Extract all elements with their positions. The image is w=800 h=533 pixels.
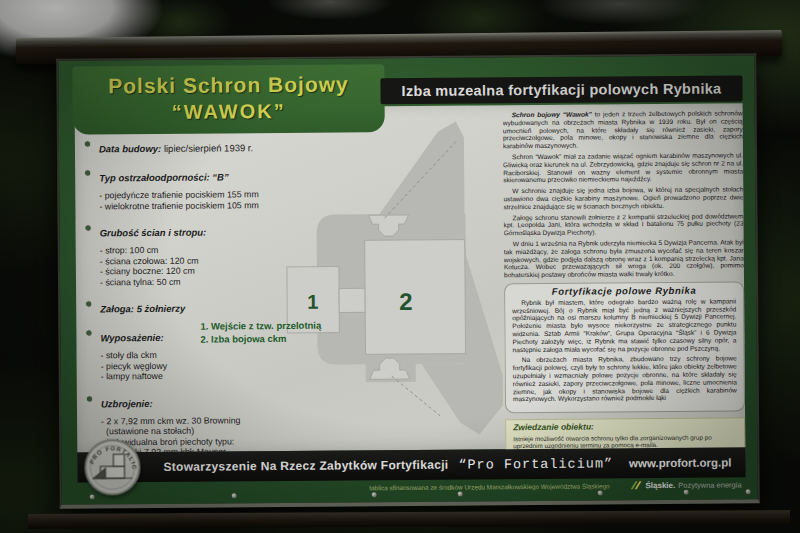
association-name: Stowarzyszenie Na Rzecz Zabytków Fortyfi… <box>163 458 448 474</box>
subtitle-header: Izba muzealna fortyfikacji polowych Rybn… <box>380 75 742 104</box>
room-label-2: 2 <box>399 288 413 315</box>
silesia-tagline: Pozytywna energia <box>678 480 741 489</box>
spec-details: - strop: 100 cm- ściana czołowa: 120 cm-… <box>100 244 291 287</box>
paragraph-1-lead: Schron bojowy “Wawok” <box>512 111 592 119</box>
room-label-1: 1 <box>307 291 318 313</box>
silesia-logo-icon <box>629 480 642 490</box>
photo-of-information-board: Polski Schron Bojowy “WAWOK” Izba muzeal… <box>0 0 800 533</box>
screw-icon <box>746 489 751 494</box>
visiting-info-box: Zwiedzanie obiektu: Istnieje możliwość o… <box>505 417 745 451</box>
silesia-branding: Śląskie. Pozytywna energia <box>629 479 741 490</box>
spec-item-typ: Typ ostrzałoodporności: “B” - pojedyńcze… <box>85 166 290 212</box>
history-text-column: Schron bojowy “Wawok” to jeden z trzech … <box>503 109 746 451</box>
bullet-icon <box>86 301 91 306</box>
legend-line-2: 2. Izba bojowa ckm <box>200 332 321 346</box>
association-website: www.profort.org.pl <box>629 456 746 469</box>
information-board: Polski Schron Bojowy “WAWOK” Izba muzeal… <box>56 53 760 508</box>
legend-line-1: 1. Wejście z tzw. przelotnią <box>200 319 321 333</box>
screw-icon <box>232 493 237 498</box>
bullet-icon <box>85 170 90 175</box>
visiting-title: Zwiedzanie obiektu: <box>513 423 737 433</box>
subtitle-text: Izba muzealna fortyfikacji polowych Rybn… <box>401 81 721 100</box>
paragraph-4: Załogę schronu stanowili żołnierze z 2 k… <box>503 212 743 237</box>
paragraph-3: W schronie znajduje się jedna izba bojow… <box>503 186 743 211</box>
title-line2: “WAWOK” <box>73 99 385 124</box>
screw-icon <box>684 490 689 495</box>
paragraph-5: W dniu 1 września na Rybnik uderzyła nie… <box>504 238 744 279</box>
diagram-legend: 1. Wejście z tzw. przelotnią 2. Izba boj… <box>200 319 321 346</box>
bullet-icon <box>86 225 91 230</box>
bunker-floor-plan-diagram: 1 2 <box>280 111 508 448</box>
fort-box-paragraph-1: Rybnik był miastem, które odegrało bardz… <box>512 297 736 353</box>
spec-details: - stoły dla ckm- piecyk węglowy- lampy n… <box>101 349 292 382</box>
spec-item-data-budowy: Data budowy: lipiec/sierpień 1939 r. <box>85 137 290 157</box>
spec-item-zaloga: Załoga: 5 żołnierzy <box>86 297 291 317</box>
screw-icon <box>598 490 603 495</box>
specifications-list: Data budowy: lipiec/sierpień 1939 r. Typ… <box>85 137 293 480</box>
silesia-brand: Śląskie. <box>645 480 675 489</box>
pro-fortalicium-logo: PRO FORTALICIUM <box>83 438 141 496</box>
bullet-icon <box>87 396 92 401</box>
paragraph-2: Schron “Wawok” miał za zadanie wiązać og… <box>503 151 743 184</box>
screw-icon <box>372 492 377 497</box>
fort-box-paragraph-2: Na obrzeżach miasta Rybnika, zbudowano t… <box>513 355 737 404</box>
bullet-icon <box>86 330 91 335</box>
paragraph-1: Schron bojowy “Wawok” to jeden z trzech … <box>503 109 743 150</box>
spec-item-grubosc: Grubość ścian i stropu: - strop: 100 cm-… <box>86 221 292 288</box>
spec-details: - pojedyńcze trafienie pociskiem 155 mm-… <box>99 189 290 211</box>
fortifications-box-title: Fortyfikacje polowe Rybnika <box>512 286 736 296</box>
footer-bar: Stowarzyszenie Na Rzecz Zabytków Fortyfi… <box>77 447 745 482</box>
funding-note: tablica sfinansowana ze środków Urzędu M… <box>369 482 609 491</box>
association-quote: “Pro Fortalicium” <box>458 456 613 472</box>
title-line1: Polski Schron Bojowy <box>72 72 384 98</box>
bullet-icon <box>85 141 90 146</box>
title-header: Polski Schron Bojowy “WAWOK” <box>72 64 385 134</box>
fortifications-box: Fortyfikacje polowe Rybnika Rybnik był m… <box>504 281 745 413</box>
screw-icon <box>458 492 463 497</box>
